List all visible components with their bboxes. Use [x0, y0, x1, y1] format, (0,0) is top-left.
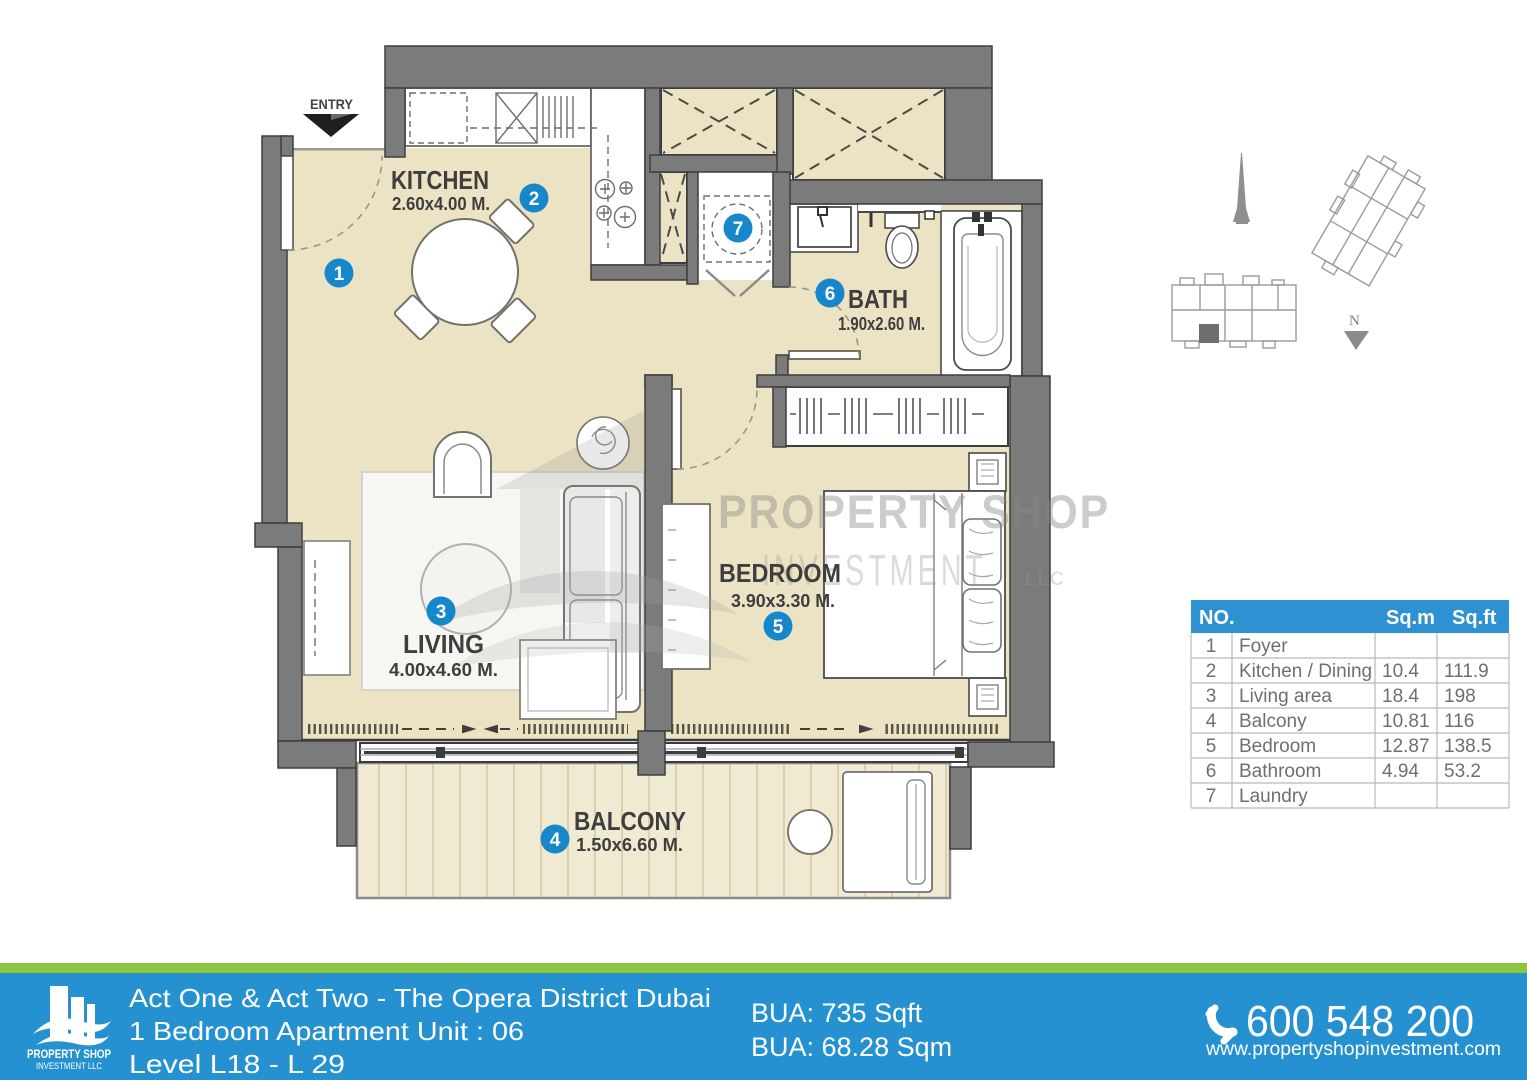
svg-text:198: 198: [1444, 686, 1476, 707]
svg-text:Sq.m: Sq.m: [1386, 607, 1435, 629]
svg-text:INVESTMENT LLC: INVESTMENT LLC: [36, 1061, 102, 1071]
svg-text:Kitchen / Dining: Kitchen / Dining: [1239, 661, 1372, 682]
svg-text:Foyer: Foyer: [1239, 636, 1288, 657]
svg-text:1.90x2.60 M.: 1.90x2.60 M.: [838, 314, 925, 334]
svg-text:18.4: 18.4: [1382, 686, 1419, 707]
svg-text:6: 6: [1206, 761, 1217, 782]
svg-text:10.4: 10.4: [1382, 661, 1419, 682]
svg-text:BUA: 735 Sqft: BUA: 735 Sqft: [751, 998, 923, 1028]
svg-text:BEDROOM: BEDROOM: [719, 558, 841, 588]
svg-text:1: 1: [1206, 636, 1217, 657]
svg-text:LIVING: LIVING: [403, 629, 484, 659]
svg-text:Sq.ft: Sq.ft: [1452, 607, 1497, 629]
svg-text:PROPERTY SHOP: PROPERTY SHOP: [27, 1047, 111, 1061]
svg-text:4.94: 4.94: [1382, 761, 1419, 782]
svg-text:LLC: LLC: [1025, 569, 1066, 590]
svg-text:2.60x4.00 M.: 2.60x4.00 M.: [392, 194, 490, 214]
svg-text:ENTRY: ENTRY: [310, 96, 354, 112]
svg-text:KITCHEN: KITCHEN: [391, 165, 489, 195]
svg-text:10.81: 10.81: [1382, 711, 1430, 732]
svg-text:Living area: Living area: [1239, 686, 1332, 707]
svg-text:1 Bedroom Apartment Unit : 06: 1 Bedroom Apartment Unit : 06: [129, 1016, 524, 1046]
svg-text:Act One & Act Two - The Opera: Act One & Act Two - The Opera District D…: [129, 983, 711, 1013]
svg-text:Bedroom: Bedroom: [1239, 736, 1316, 757]
svg-text:3: 3: [436, 602, 447, 623]
svg-text:6: 6: [825, 284, 836, 305]
svg-text:3: 3: [1206, 686, 1217, 707]
svg-text:N: N: [1349, 313, 1360, 329]
svg-text:Level L18 - L 29: Level L18 - L 29: [129, 1049, 345, 1079]
svg-text:4: 4: [1206, 711, 1217, 732]
svg-text:116: 116: [1444, 711, 1474, 732]
svg-text:www.propertyshopinvestment.com: www.propertyshopinvestment.com: [1205, 1039, 1501, 1060]
svg-text:1.50x6.60 M.: 1.50x6.60 M.: [576, 835, 683, 855]
svg-text:138.5: 138.5: [1444, 736, 1492, 757]
svg-text:BATH: BATH: [848, 284, 908, 314]
svg-text:111.9: 111.9: [1444, 661, 1489, 682]
svg-text:NO.: NO.: [1199, 607, 1235, 629]
svg-text:4.00x4.60 M.: 4.00x4.60 M.: [389, 660, 498, 680]
svg-text:1: 1: [334, 264, 345, 285]
svg-text:BALCONY: BALCONY: [574, 806, 686, 836]
svg-text:12.87: 12.87: [1382, 736, 1430, 757]
svg-text:5: 5: [773, 617, 784, 638]
svg-text:2: 2: [1206, 661, 1217, 682]
svg-text:4: 4: [550, 830, 561, 851]
svg-text:3.90x3.30 M.: 3.90x3.30 M.: [731, 591, 835, 611]
svg-text:BUA: 68.28 Sqm: BUA: 68.28 Sqm: [751, 1032, 952, 1062]
svg-text:Bathroom: Bathroom: [1239, 761, 1321, 782]
svg-text:53.2: 53.2: [1444, 761, 1481, 782]
svg-text:PROPERTY SHOP: PROPERTY SHOP: [718, 485, 1110, 538]
svg-text:Laundry: Laundry: [1239, 786, 1308, 807]
svg-text:7: 7: [1206, 786, 1217, 807]
svg-text:5: 5: [1206, 736, 1217, 757]
svg-text:Balcony: Balcony: [1239, 711, 1307, 732]
svg-text:2: 2: [529, 189, 540, 210]
svg-text:7: 7: [733, 219, 744, 240]
